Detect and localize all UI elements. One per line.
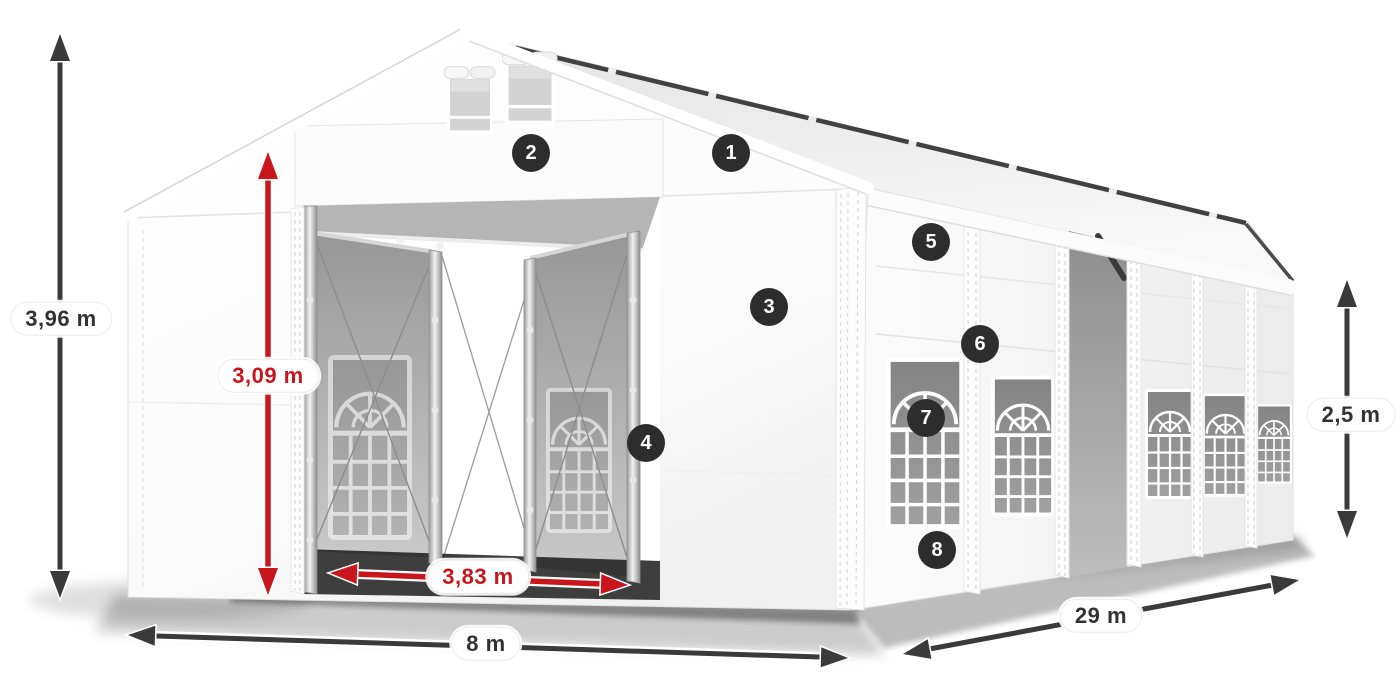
feature-marker-5[interactable]: 5 [912, 223, 950, 261]
feature-marker-2[interactable]: 2 [512, 134, 550, 172]
entrance-opening [303, 197, 660, 600]
feature-marker-7[interactable]: 7 [907, 399, 945, 437]
door-panel-right [530, 233, 634, 577]
gable-vent-left [444, 67, 495, 132]
door-panel-left [312, 233, 436, 558]
dimension-label-door-width: 3,83 m [427, 560, 529, 594]
dimension-label-length: 29 m [1060, 599, 1142, 633]
feature-marker-6[interactable]: 6 [961, 325, 999, 363]
tent-diagram-svg [0, 0, 1400, 700]
dimension-label-front-width: 8 m [451, 627, 520, 661]
feature-marker-1[interactable]: 1 [712, 134, 750, 172]
side-window-5 [1257, 405, 1291, 482]
product-diagram: 3,96 m 3,09 m 3,83 m 8 m 29 m 2,5 m 1234… [0, 0, 1400, 700]
feature-marker-8[interactable]: 8 [918, 531, 956, 569]
dimension-label-door-height: 3,09 m [217, 359, 319, 393]
side-window-2 [993, 378, 1053, 515]
dimension-label-total-height: 3,96 m [10, 302, 112, 336]
side-window-1 [888, 360, 961, 527]
front-seam-strap [291, 207, 304, 594]
side-window-4 [1203, 395, 1247, 496]
side-window-3 [1147, 391, 1194, 498]
dimension-label-side-height: 2,5 m [1307, 398, 1396, 432]
feature-marker-4[interactable]: 4 [627, 424, 665, 462]
side-open-section [1069, 231, 1127, 577]
feature-marker-3[interactable]: 3 [750, 288, 788, 326]
